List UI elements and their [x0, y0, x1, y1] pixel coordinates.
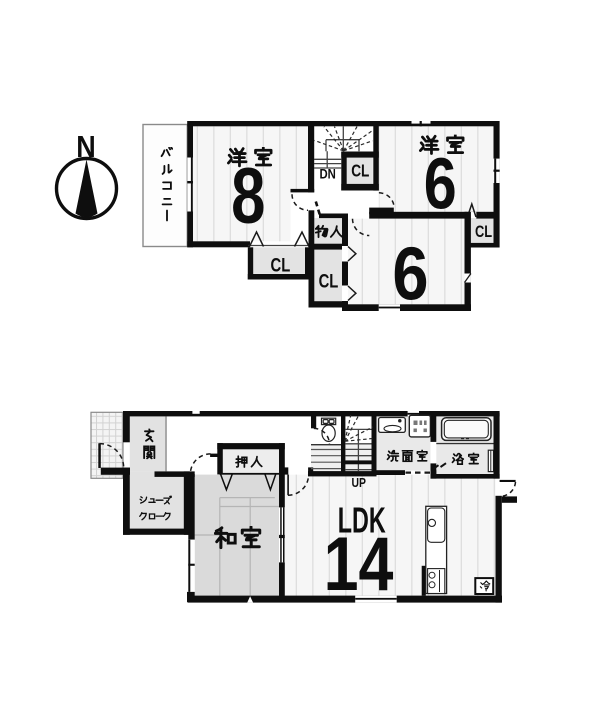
- svg-text:6: 6: [392, 231, 428, 316]
- svg-text:UP: UP: [351, 476, 366, 490]
- svg-text:CL: CL: [351, 162, 370, 181]
- svg-text:CL: CL: [475, 224, 492, 242]
- svg-text:8: 8: [231, 152, 265, 240]
- svg-text:DN: DN: [320, 165, 336, 182]
- svg-text:CL: CL: [319, 271, 339, 292]
- svg-text:14: 14: [324, 521, 394, 606]
- svg-text:6: 6: [424, 144, 457, 225]
- svg-text:CL: CL: [271, 255, 291, 276]
